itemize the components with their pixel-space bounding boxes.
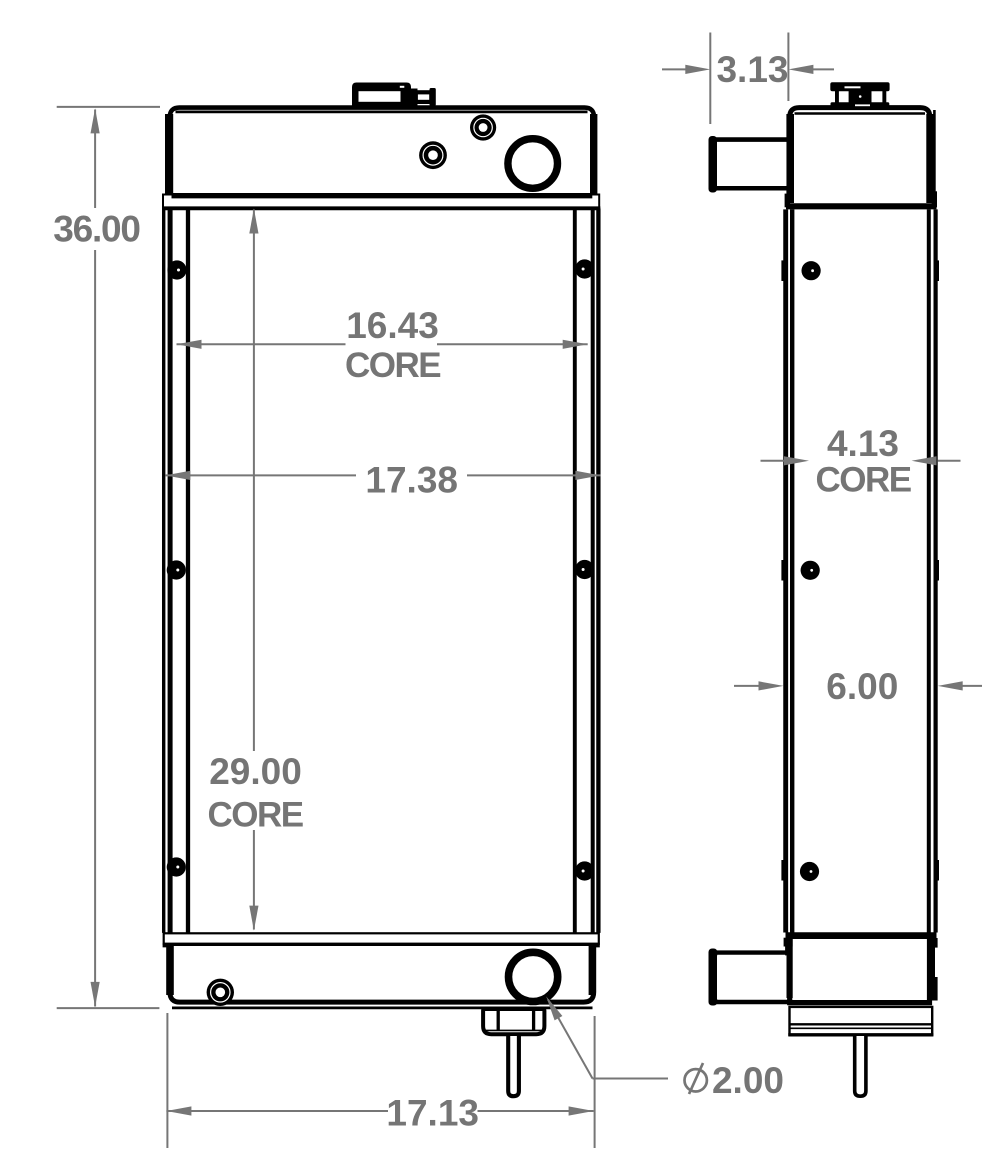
svg-text:2.00: 2.00 — [712, 1060, 784, 1101]
svg-text:CORE: CORE — [207, 796, 302, 835]
svg-text:3.13: 3.13 — [716, 49, 788, 90]
svg-text:6.00: 6.00 — [826, 666, 898, 707]
svg-text:29.00: 29.00 — [209, 751, 302, 792]
svg-text:CORE: CORE — [345, 346, 440, 385]
svg-text:CORE: CORE — [816, 461, 911, 500]
svg-text:17.38: 17.38 — [365, 459, 458, 500]
svg-text:36.00: 36.00 — [53, 209, 140, 250]
svg-text:17.13: 17.13 — [386, 1092, 479, 1133]
svg-text:4.13: 4.13 — [827, 423, 899, 464]
svg-text:16.43: 16.43 — [346, 305, 439, 346]
